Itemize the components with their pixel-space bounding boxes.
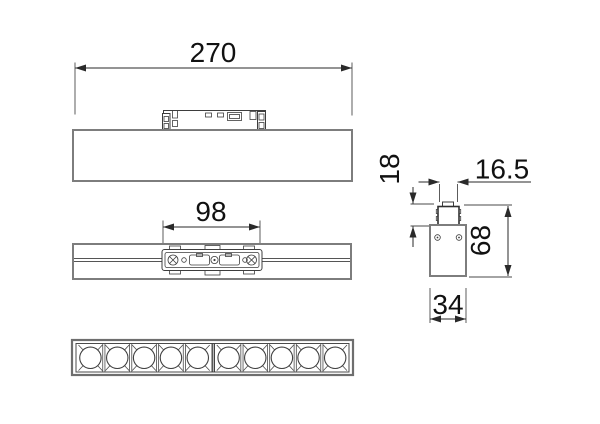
- track-stem-side: [436, 202, 460, 225]
- lens-circle: [80, 347, 101, 368]
- lens-circle: [107, 347, 128, 368]
- dim-connector-length-label: 98: [195, 196, 226, 227]
- lens-circle: [298, 347, 319, 368]
- fixture-body-front: [73, 130, 352, 181]
- dim-stem-width-label: 16.5: [475, 154, 530, 185]
- lens-cell: [217, 345, 241, 371]
- lens-circle: [245, 347, 266, 368]
- lens-circle: [271, 347, 292, 368]
- lens-circle: [218, 347, 239, 368]
- plan-view: 98: [73, 196, 351, 279]
- dim-body-width-label: 34: [432, 289, 463, 320]
- front-view: 270: [73, 37, 352, 181]
- dim-front-length-label: 270: [190, 37, 237, 68]
- bottom-view: [72, 340, 353, 375]
- dim-total-height-label: 68: [465, 225, 496, 256]
- connector-plate: [162, 246, 262, 276]
- fixture-body-side: [430, 225, 466, 276]
- lens-cell: [79, 345, 103, 371]
- track-adapter-front: [163, 111, 266, 131]
- dim-stem-height-label: 18: [374, 153, 405, 184]
- lens-circle: [133, 347, 154, 368]
- side-view: 18 16.5 68 34: [374, 153, 531, 323]
- lens-circle: [187, 347, 208, 368]
- lens-circle: [160, 347, 181, 368]
- lens-circle: [324, 347, 345, 368]
- technical-drawing: 270 98: [0, 0, 600, 424]
